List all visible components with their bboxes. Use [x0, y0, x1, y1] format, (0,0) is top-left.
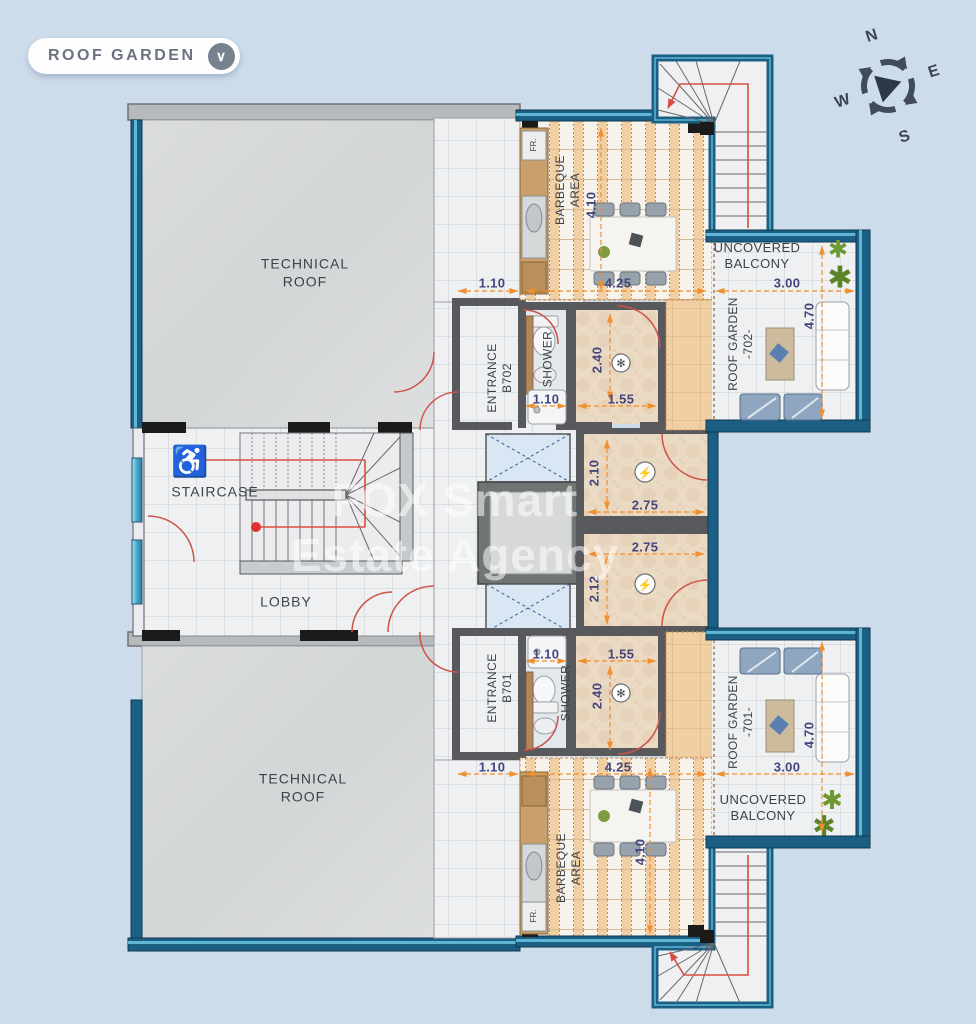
lounge-chair: [740, 648, 780, 674]
wheelchair-icon: ♿: [171, 445, 208, 480]
dim-701-entrance-width: 1.10: [479, 760, 506, 775]
lounge-chair: [740, 394, 780, 420]
chevron-down-icon[interactable]: ∨: [208, 43, 235, 70]
technical-roof-bottom-label: TECHNICAL ROOF: [259, 771, 347, 806]
barbeque-702-label: BARBEQUE AREA: [553, 155, 583, 225]
window-glass: [132, 540, 142, 604]
dining-set: [590, 203, 676, 285]
dim-701-hall-depth: 2.40: [590, 683, 605, 710]
dim-702-room-width: 2.75: [632, 498, 659, 513]
balcony-702-label: UNCOVERED BALCONY: [714, 240, 801, 273]
svg-text:✻: ✻: [616, 688, 625, 700]
svg-text:⚡: ⚡: [638, 466, 653, 480]
roof-garden-701-label: ROOF GARDEN -701-: [726, 675, 756, 769]
dim-702-hall-width: 1.55: [608, 392, 635, 407]
bath-counter: [526, 316, 533, 394]
shower-702-label: SHOWER: [541, 331, 556, 387]
dim-701-hall-width: 1.55: [608, 647, 635, 662]
entrance-701-label: ENTRANCE B701: [485, 653, 515, 722]
compass-west-label: W: [833, 91, 853, 112]
window-glass: [132, 458, 142, 522]
plant-icon: ✱: [827, 262, 852, 295]
lounge-chair: [784, 394, 822, 420]
compass-north-label: N: [864, 26, 880, 46]
sofa: [816, 674, 849, 762]
dim-701-room-depth: 2.12: [587, 576, 602, 603]
fixture-icon: ✻: [612, 354, 630, 372]
shaft-void-top: [486, 434, 570, 482]
compass-rose: N E S W: [816, 11, 958, 162]
entrance-702-label: ENTRANCE B702: [485, 343, 515, 412]
dim-701-room-width: 2.75: [632, 540, 659, 555]
shaft-void-bottom: [486, 584, 570, 632]
bath-counter: [526, 672, 533, 750]
barbeque-701-label: BARBEQUE AREA: [554, 833, 584, 903]
dim-702-room-depth: 2.10: [587, 460, 602, 487]
dim-702-entrance-width: 1.10: [479, 276, 506, 291]
floor-selector-dropdown[interactable]: ROOF GARDEN ∨: [28, 38, 240, 74]
floor-plan-drawing: ⚡ ⚡ ✻ ✻: [0, 0, 976, 1024]
elevator-shaft: [478, 482, 582, 584]
lobby-label: LOBBY: [260, 593, 312, 611]
floor-plan-page: ⚡ ⚡ ✻ ✻: [0, 0, 976, 1024]
svg-text:✻: ✻: [616, 358, 625, 370]
roof-garden-702-label: ROOF GARDEN -702-: [726, 297, 756, 391]
dim-701-deck-width: 4.25: [605, 760, 632, 775]
electric-icon: ⚡: [635, 462, 655, 482]
balcony-701-label: UNCOVERED BALCONY: [720, 792, 807, 825]
dim-702-hall-depth: 2.40: [590, 347, 605, 374]
dim-702-garden-length: 4.70: [802, 303, 817, 330]
dim-702-deck-length: 4.10: [584, 192, 599, 219]
plant-icon: ✱: [812, 811, 835, 842]
dim-701-balcony-width: 3.00: [774, 760, 801, 775]
fixture-icon: ✻: [612, 684, 630, 702]
fridge-701-label: FR.: [529, 910, 539, 923]
electric-icon: ⚡: [635, 574, 655, 594]
staircase-label: STAIRCASE: [171, 483, 258, 501]
technical-roof-top-label: TECHNICAL ROOF: [261, 256, 349, 291]
stair-start-dot: [251, 522, 261, 532]
sofa: [816, 302, 849, 390]
fridge-702-label: FR.: [529, 139, 539, 152]
dim-701-shower-width: 1.10: [533, 647, 560, 662]
floor-selector-label: ROOF GARDEN: [48, 47, 196, 65]
svg-text:⚡: ⚡: [638, 578, 653, 592]
compass-south-label: S: [897, 127, 913, 147]
dim-702-deck-width: 4.25: [605, 276, 632, 291]
dim-701-garden-length: 4.70: [802, 722, 817, 749]
dim-702-balcony-width: 3.00: [774, 276, 801, 291]
compass-east-label: E: [926, 62, 942, 82]
lounge-chair: [784, 648, 822, 674]
shower-701-label: SHOWER: [559, 665, 574, 721]
dim-701-deck-length: 4.10: [633, 839, 648, 866]
sink-icon: [534, 718, 556, 734]
plant-icon: ✱: [828, 237, 848, 264]
dim-702-shower-width: 1.10: [533, 392, 560, 407]
